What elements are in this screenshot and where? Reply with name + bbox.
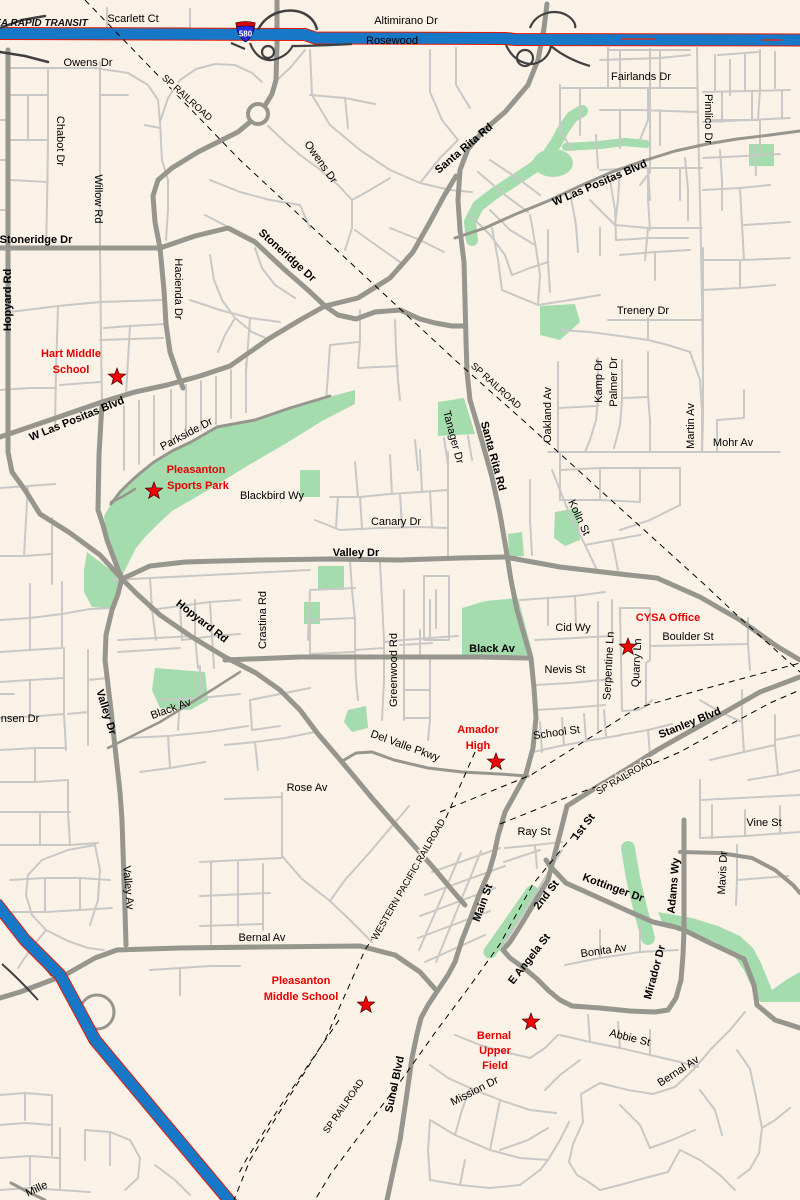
svg-text:Amador: Amador <box>457 724 499 736</box>
svg-text:Canary Dr: Canary Dr <box>371 516 421 528</box>
svg-text:Chabot Dr: Chabot Dr <box>54 116 66 166</box>
svg-text:Martin Av: Martin Av <box>685 403 697 449</box>
svg-text:Upper: Upper <box>479 1045 512 1057</box>
svg-text:Scarlett Ct: Scarlett Ct <box>107 13 158 25</box>
svg-text:Fairlands Dr: Fairlands Dr <box>611 71 671 83</box>
svg-text:580: 580 <box>239 30 253 39</box>
svg-text:Altimirano Dr: Altimirano Dr <box>374 15 438 27</box>
svg-text:Black Av: Black Av <box>469 643 516 655</box>
svg-text:High: High <box>466 740 491 752</box>
svg-text:Pleasanton: Pleasanton <box>272 975 331 987</box>
svg-text:Greenwood Rd: Greenwood Rd <box>388 633 400 707</box>
svg-text:Bernal Av: Bernal Av <box>239 932 286 944</box>
svg-text:Palmer Dr: Palmer Dr <box>608 357 620 407</box>
svg-text:Mavis Dr: Mavis Dr <box>716 851 730 895</box>
svg-text:Middle School: Middle School <box>264 991 339 1003</box>
svg-text:Hacienda Dr: Hacienda Dr <box>172 258 184 319</box>
svg-text:Rosewood: Rosewood <box>366 35 418 47</box>
svg-text:Boulder St: Boulder St <box>662 631 713 643</box>
svg-text:Hopyard Rd: Hopyard Rd <box>2 269 14 331</box>
svg-text:EA RAPID TRANSIT: EA RAPID TRANSIT <box>0 18 89 29</box>
svg-text:Quarry Ln: Quarry Ln <box>630 638 645 687</box>
svg-text:Pimlico Dr: Pimlico Dr <box>702 94 714 144</box>
svg-text:CYSA Office: CYSA Office <box>636 612 700 624</box>
svg-text:Hart Middle: Hart Middle <box>41 348 101 360</box>
svg-text:Mohr Av: Mohr Av <box>713 437 754 449</box>
svg-text:Ray St: Ray St <box>517 826 550 838</box>
svg-text:Oakland Av: Oakland Av <box>542 386 554 443</box>
svg-text:Blackbird Wy: Blackbird Wy <box>240 490 305 502</box>
svg-text:Owens Dr: Owens Dr <box>64 57 113 69</box>
svg-text:Rose Av: Rose Av <box>287 782 328 794</box>
svg-text:Stoneridge Dr: Stoneridge Dr <box>0 234 73 246</box>
svg-text:Pleasanton: Pleasanton <box>167 464 226 476</box>
svg-text:Nevis St: Nevis St <box>545 664 586 676</box>
svg-text:Crastina Rd: Crastina Rd <box>257 591 269 649</box>
svg-text:nsen Dr: nsen Dr <box>1 713 40 725</box>
svg-text:Valley Dr: Valley Dr <box>333 547 380 559</box>
svg-text:Vine St: Vine St <box>746 817 781 829</box>
svg-text:Willow Rd: Willow Rd <box>92 175 104 224</box>
svg-text:School: School <box>53 364 90 376</box>
svg-text:Cid Wy: Cid Wy <box>555 622 591 634</box>
svg-text:Kamp Dr: Kamp Dr <box>593 359 605 403</box>
svg-text:Field: Field <box>482 1060 508 1072</box>
svg-text:Sports Park: Sports Park <box>167 480 230 492</box>
svg-text:Trenery Dr: Trenery Dr <box>617 305 669 317</box>
svg-text:Bernal: Bernal <box>477 1030 511 1042</box>
